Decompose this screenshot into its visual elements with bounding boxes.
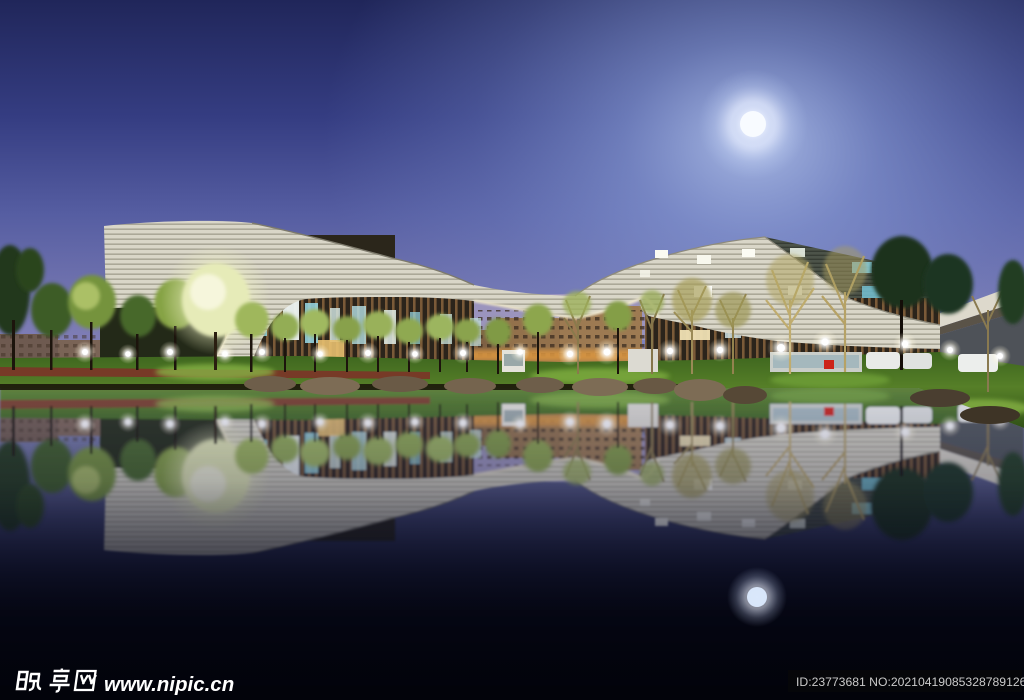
svg-text:www.nipic.cn: www.nipic.cn	[104, 673, 234, 696]
svg-text:ID:23773681 NO:202104190853287: ID:23773681 NO:20210419085328789126	[796, 675, 1024, 689]
